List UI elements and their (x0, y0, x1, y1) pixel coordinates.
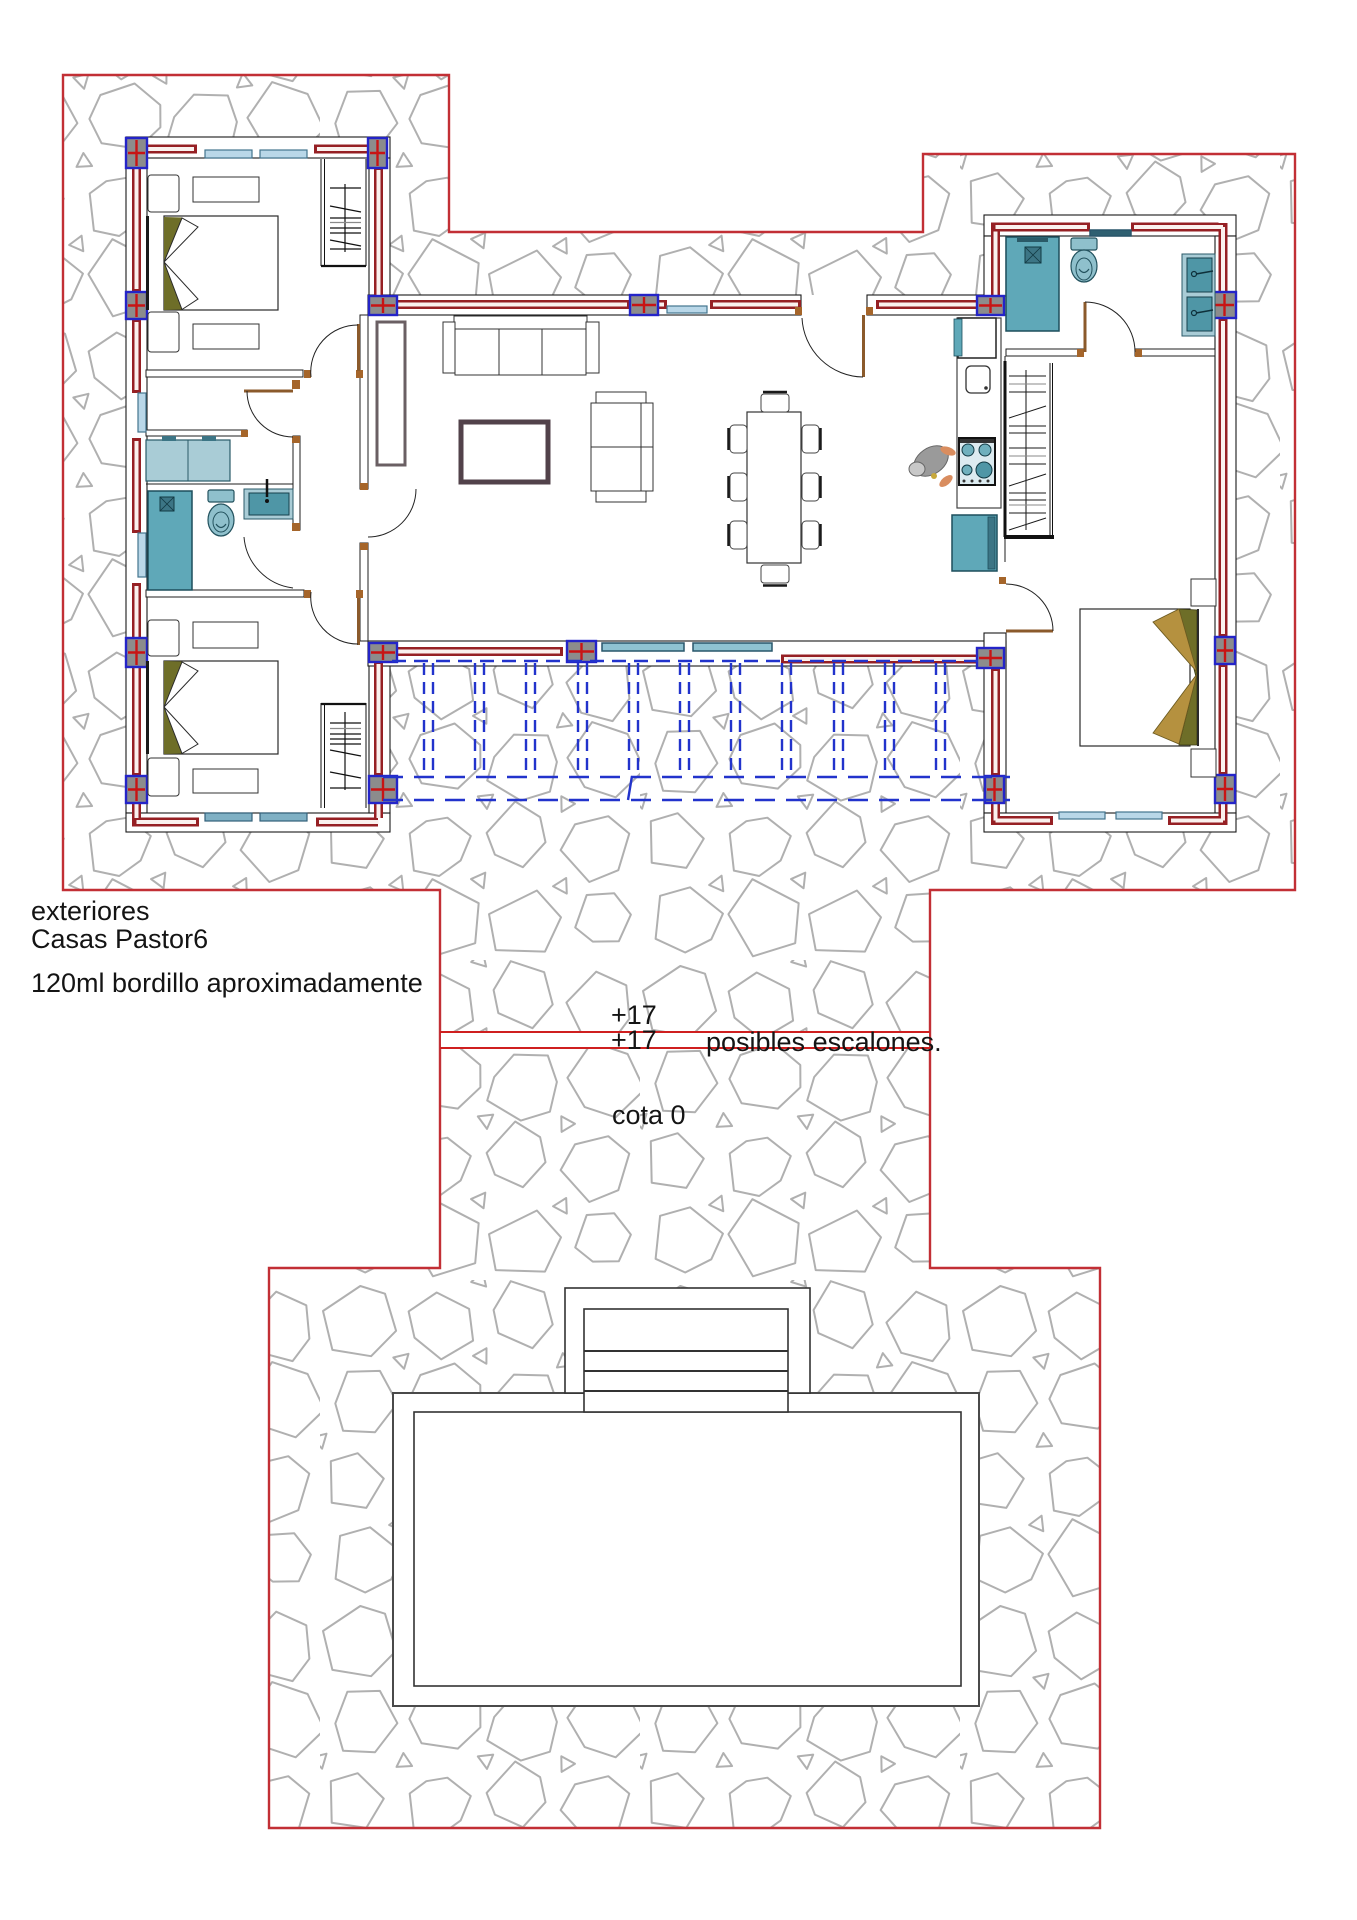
svg-text:posibles escalones.: posibles escalones. (706, 1027, 942, 1057)
svg-text:exteriores: exteriores (31, 896, 150, 926)
svg-text:120ml bordillo aproximadamente: 120ml bordillo aproximadamente (31, 968, 423, 998)
svg-text:+17: +17 (611, 1025, 657, 1055)
svg-text:cota 0: cota 0 (612, 1100, 686, 1130)
svg-text:Casas Pastor6: Casas Pastor6 (31, 924, 208, 954)
